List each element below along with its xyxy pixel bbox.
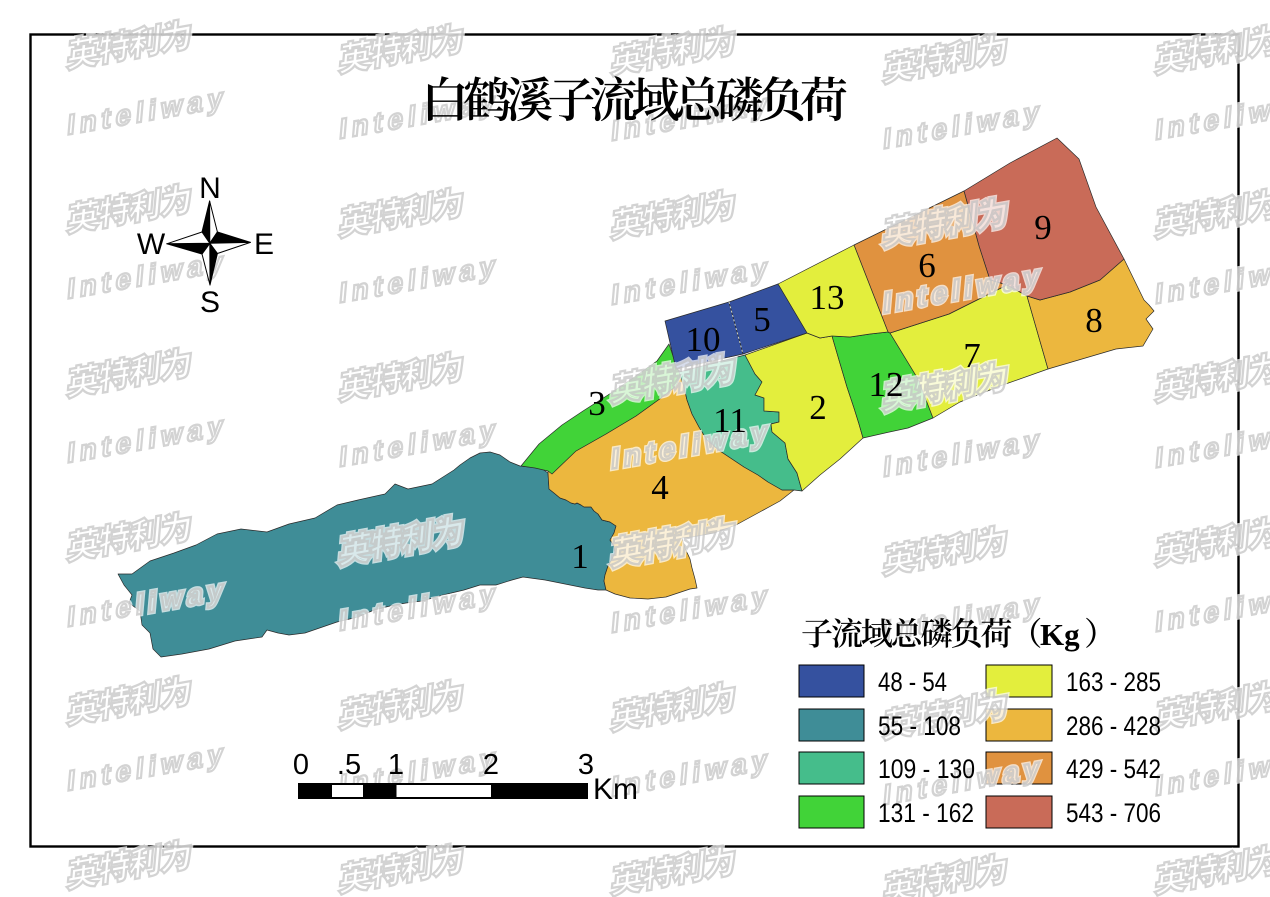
svg-text:S: S [200, 286, 220, 319]
svg-text:131 - 162: 131 - 162 [878, 798, 974, 828]
svg-text:429 - 542: 429 - 542 [1066, 754, 1161, 784]
svg-text:8: 8 [1085, 301, 1103, 340]
svg-text:543 - 706: 543 - 706 [1066, 798, 1161, 828]
svg-text:10: 10 [686, 320, 721, 359]
svg-text:2: 2 [809, 388, 827, 427]
svg-text:4: 4 [651, 468, 669, 507]
svg-text:12: 12 [869, 365, 904, 404]
svg-text:163 - 285: 163 - 285 [1066, 667, 1161, 697]
svg-text:11: 11 [713, 401, 747, 440]
svg-text:W: W [137, 228, 166, 261]
svg-text:1: 1 [388, 749, 404, 781]
svg-text:3: 3 [588, 384, 606, 423]
svg-text:13: 13 [810, 278, 845, 317]
svg-text:2: 2 [483, 749, 499, 781]
svg-text:7: 7 [963, 336, 981, 375]
svg-text:55 - 108: 55 - 108 [878, 711, 961, 741]
svg-text:Km: Km [593, 773, 638, 806]
svg-text:5: 5 [753, 300, 771, 339]
svg-text:E: E [254, 228, 274, 261]
svg-text:3: 3 [578, 749, 594, 781]
svg-text:N: N [199, 172, 221, 205]
svg-text:.5: .5 [337, 749, 361, 781]
svg-text:48 - 54: 48 - 54 [878, 667, 947, 697]
svg-text:6: 6 [918, 246, 936, 285]
svg-text:9: 9 [1034, 208, 1052, 247]
svg-text:286 - 428: 286 - 428 [1066, 711, 1161, 741]
svg-text:1: 1 [571, 537, 589, 576]
svg-text:Kg: Kg [1040, 617, 1080, 652]
svg-text:0: 0 [293, 749, 309, 781]
svg-text:109 - 130: 109 - 130 [878, 754, 975, 784]
